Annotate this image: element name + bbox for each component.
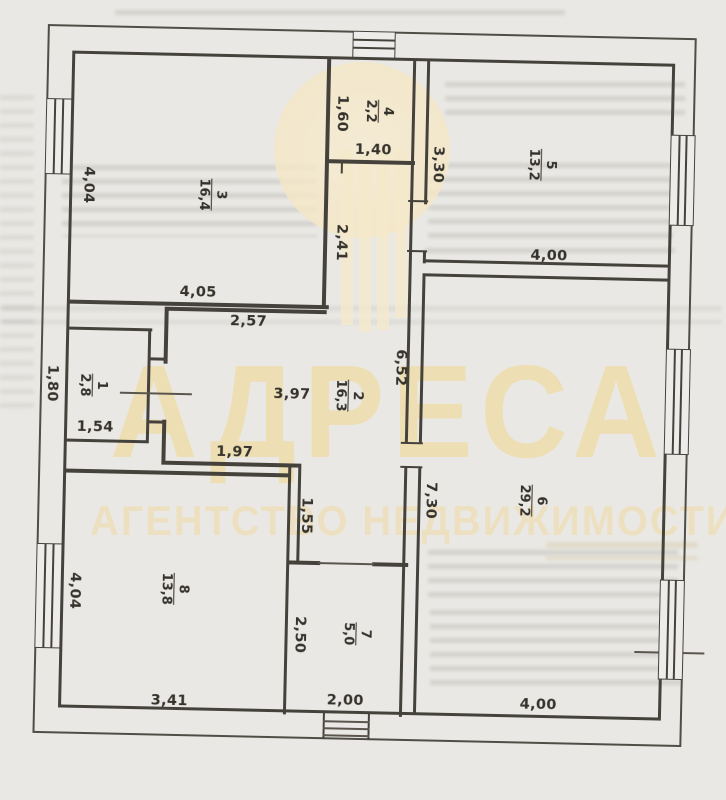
room-area: 13,8: [157, 573, 173, 605]
window-room6-right-upper: [664, 349, 691, 456]
room-area: 13,2: [525, 148, 541, 180]
dim-room7-bottom: 2,00: [327, 692, 364, 709]
window-room3-left: [45, 98, 73, 175]
room-label-5: 5 13,2: [525, 148, 557, 181]
dim-hall-jog: 1,55: [298, 497, 315, 534]
dim-room3-left: 4,04: [80, 166, 97, 203]
window-room4-top: [352, 31, 396, 59]
dim-room8-left: 4,04: [66, 572, 83, 609]
room-label-1: 1 2,8: [76, 373, 108, 397]
dim-room4-left: 1,60: [334, 95, 351, 132]
dim-hall-bottom: 1,97: [216, 444, 253, 461]
dim-room5-left: 3,30: [430, 146, 447, 183]
room-label-3: 3 16,4: [195, 178, 227, 211]
room-area: 2,2: [362, 99, 378, 122]
room-number: 5: [540, 149, 557, 181]
door-jamb-room5-top: [408, 200, 428, 202]
dim-room3-bottom: 4,05: [179, 284, 216, 301]
room-number: 6: [531, 485, 548, 517]
scanned-floor-plan-page: АДРЕСА АГЕНТСТВО НЕДВИЖИМОСТИ: [0, 0, 726, 800]
door-jamb-room5-bottom: [407, 250, 427, 252]
dim-room8-bottom: 3,41: [151, 692, 188, 709]
dim-room2-width: 3,97: [273, 386, 310, 403]
room-number: 1: [91, 374, 108, 397]
room-area: 2,8: [76, 373, 92, 396]
dim-room6-left: 7,30: [422, 482, 439, 519]
room-label-6: 6 29,2: [515, 484, 547, 517]
room-label-7: 7 5,0: [340, 622, 372, 646]
dim-room6-bottom: 4,00: [520, 696, 557, 713]
dim-room4-bottom: 1,40: [355, 142, 392, 159]
room-number: 3: [210, 179, 227, 211]
room-label-8: 8 13,8: [157, 573, 189, 606]
dim-room2-right: 6,52: [392, 349, 409, 386]
dim-room7-left: 2,50: [291, 616, 308, 653]
dim-room1-left: 1,80: [44, 365, 61, 402]
room-area: 16,4: [195, 178, 211, 210]
window-room6-right-lower: [658, 580, 685, 681]
floor-plan: 3 16,4 4 2,2 5 13,2 2 16,3 1 2,8 6 29,2 …: [0, 0, 726, 800]
room-number: 7: [355, 622, 372, 645]
wall-room1-stub-lower: [146, 420, 166, 423]
wall-room7-top-left: [286, 560, 320, 565]
room-area: 5,0: [340, 622, 356, 645]
room-label-4: 4 2,2: [362, 99, 394, 123]
door-jamb-room4: [341, 163, 343, 173]
room-label-2: 2 16,3: [332, 379, 364, 412]
room-number: 2: [347, 380, 364, 412]
dim-room2-top: 2,57: [230, 313, 267, 330]
window-room5-right: [669, 135, 696, 227]
room-area: 16,3: [332, 379, 348, 411]
window-room8-left: [34, 543, 62, 649]
dim-room5-bottom: 4,00: [530, 248, 567, 265]
dim-room1-bottom: 1,54: [76, 419, 113, 436]
room-area: 29,2: [515, 484, 531, 516]
room-number: 4: [377, 100, 394, 123]
dim-corridor-right: 2,41: [333, 224, 350, 261]
room-number: 8: [173, 573, 190, 605]
wall-room1-stub-upper: [148, 357, 168, 360]
